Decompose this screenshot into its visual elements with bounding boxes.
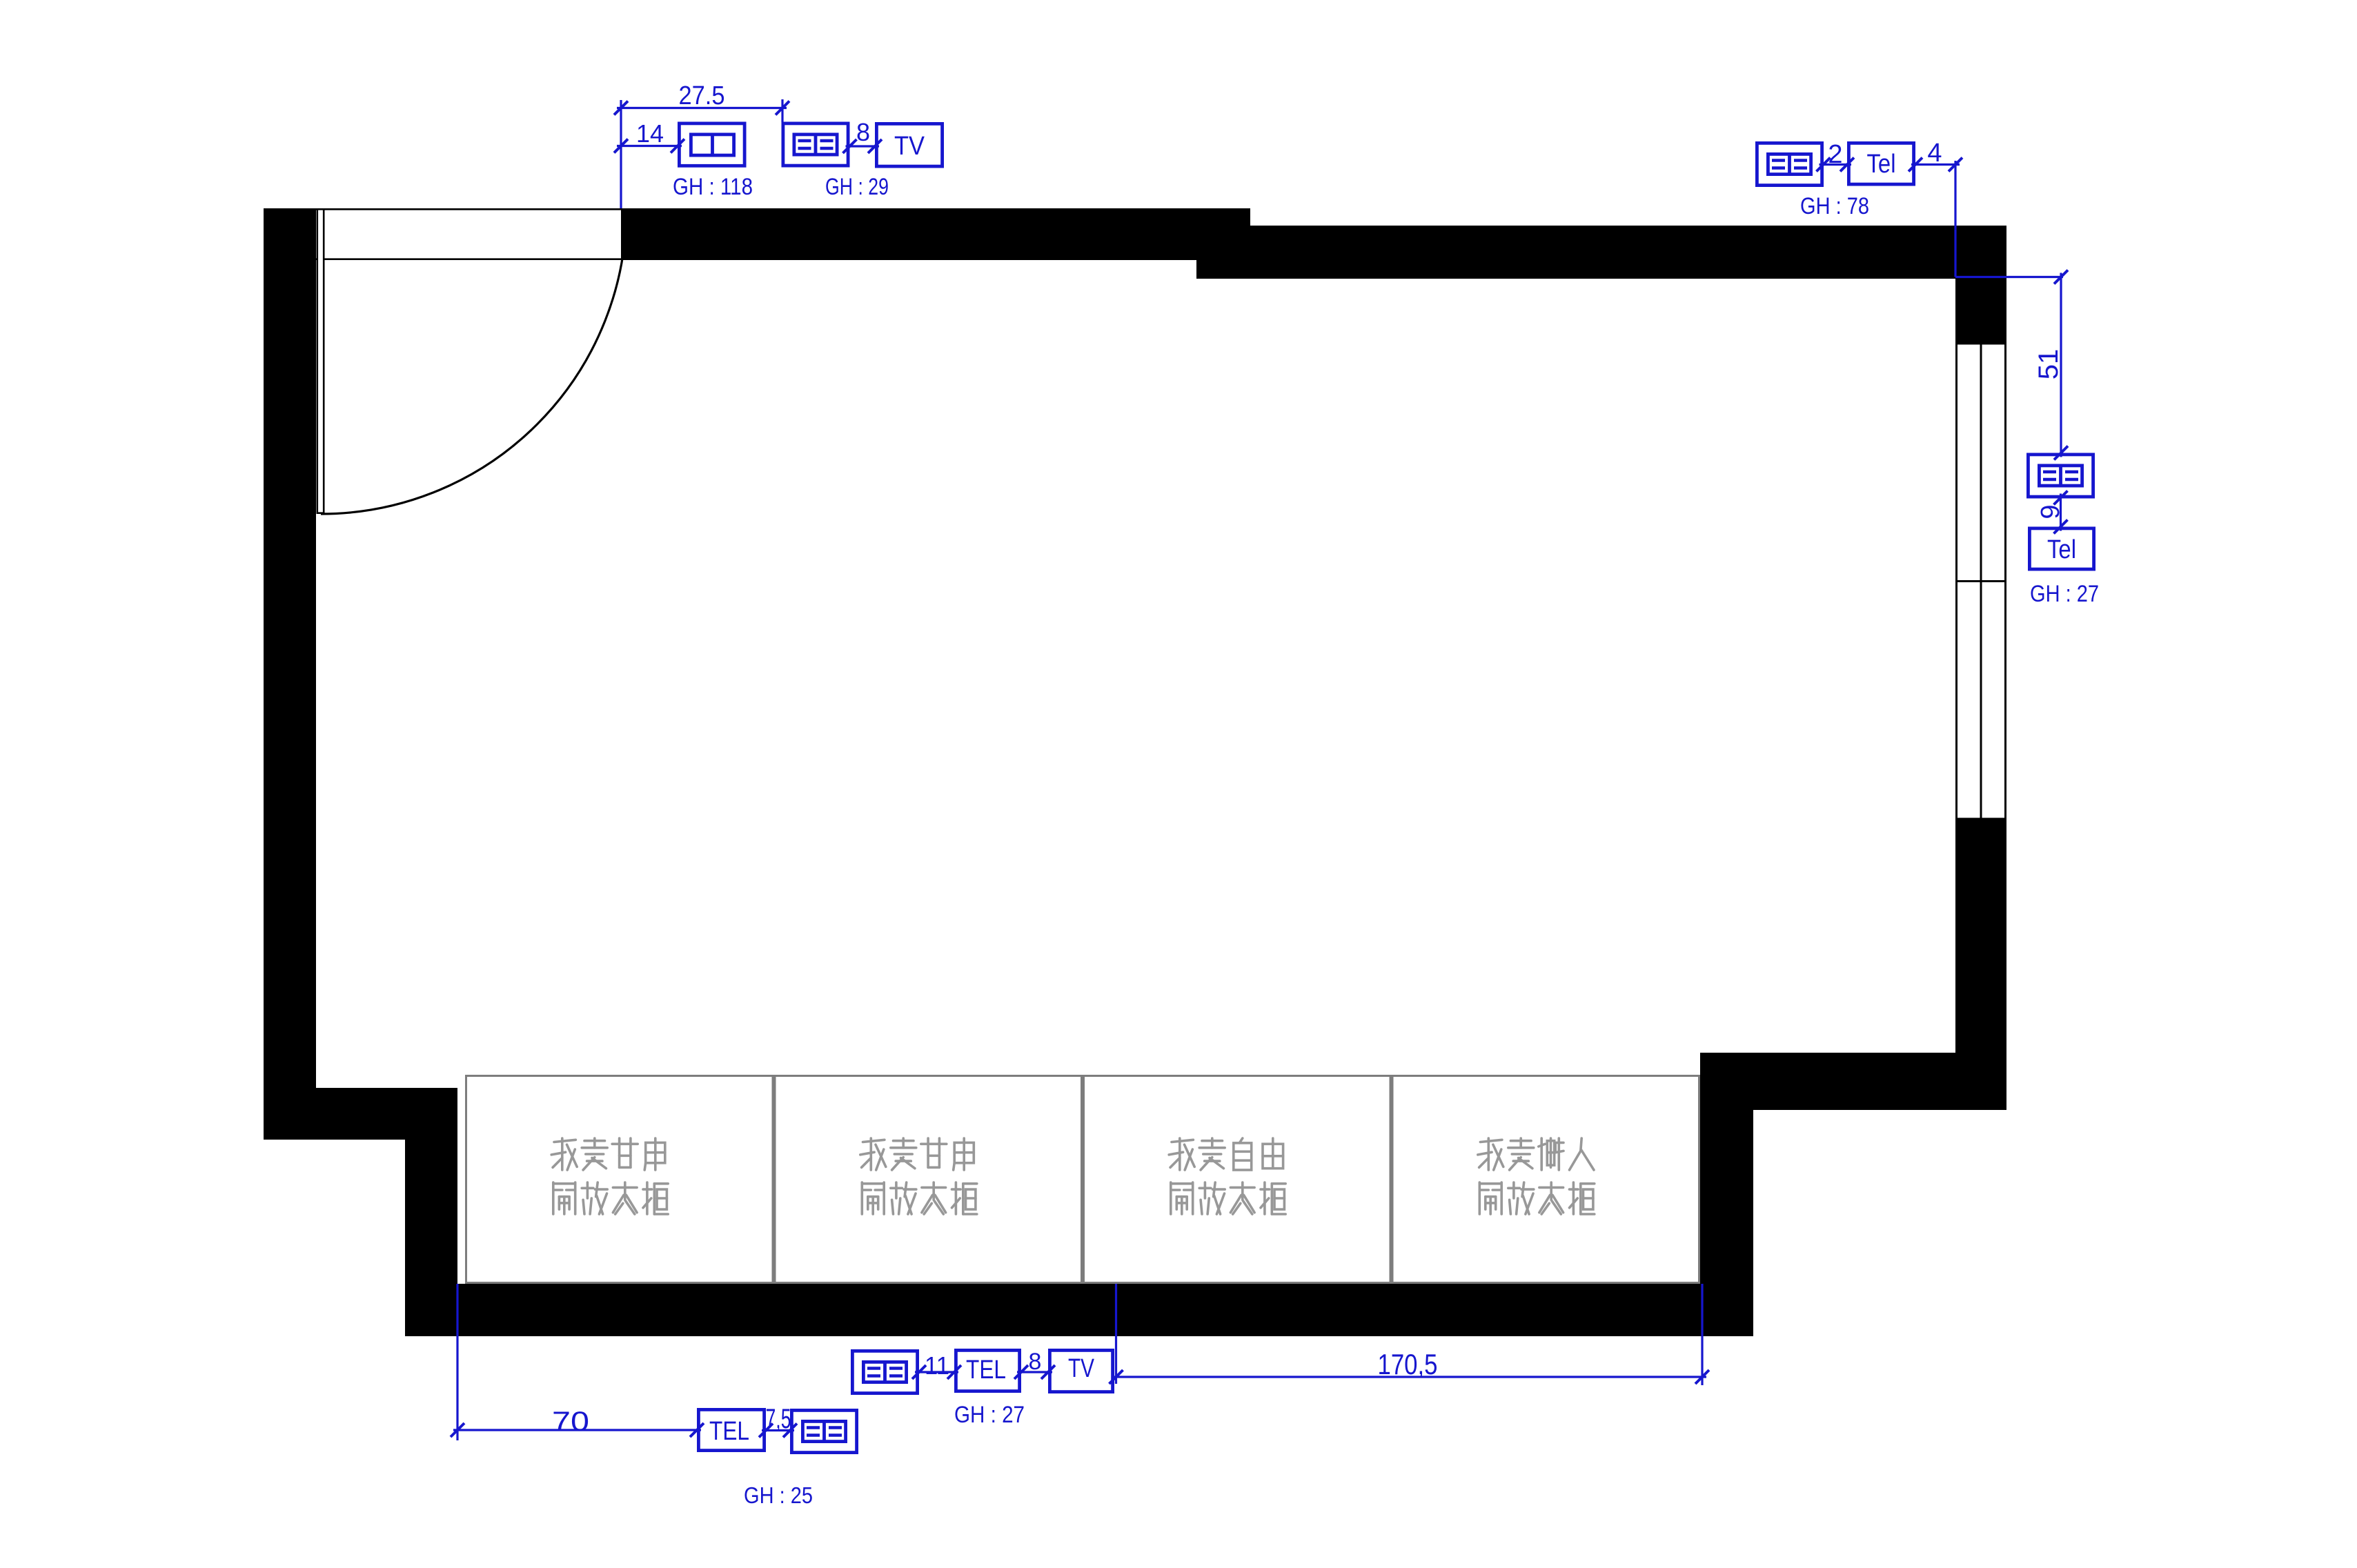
svg-text:7,5: 7,5 (766, 1404, 791, 1434)
svg-text:Tel: Tel (2047, 535, 2076, 564)
svg-text:GH : 118: GH : 118 (673, 174, 753, 200)
svg-text:11: 11 (925, 1351, 949, 1380)
svg-text:8: 8 (856, 118, 870, 146)
svg-text:Tel: Tel (1867, 150, 1896, 179)
svg-text:GH : 78: GH : 78 (1800, 193, 1869, 219)
svg-text:14: 14 (636, 119, 664, 148)
svg-text:2: 2 (1828, 140, 1842, 169)
svg-text:27.5: 27.5 (679, 81, 725, 110)
svg-text:GH : 29: GH : 29 (825, 174, 889, 200)
svg-text:GH : 27: GH : 27 (2030, 581, 2099, 607)
svg-text:GH : 25: GH : 25 (744, 1482, 813, 1508)
svg-text:70: 70 (552, 1407, 589, 1437)
svg-text:170,5: 170,5 (1378, 1348, 1438, 1380)
svg-text:TV: TV (1068, 1354, 1095, 1383)
svg-text:51: 51 (2033, 349, 2064, 380)
svg-text:GH : 27: GH : 27 (954, 1402, 1025, 1428)
svg-text:TEL: TEL (966, 1356, 1006, 1385)
svg-text:8: 8 (1029, 1349, 1042, 1375)
svg-text:TEL: TEL (709, 1417, 749, 1446)
svg-text:4: 4 (1927, 139, 1942, 168)
svg-text:9: 9 (2036, 504, 2065, 519)
svg-text:TV: TV (894, 132, 925, 161)
